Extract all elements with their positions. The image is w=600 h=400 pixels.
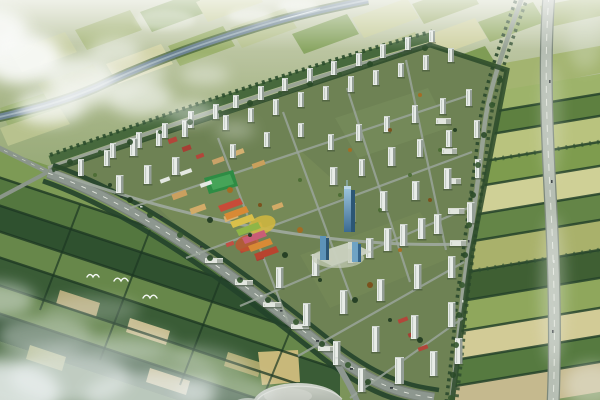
scene-svg — [0, 0, 600, 400]
aerial-city-rendering: Aerial rendering of a planned residentia… — [0, 0, 600, 400]
